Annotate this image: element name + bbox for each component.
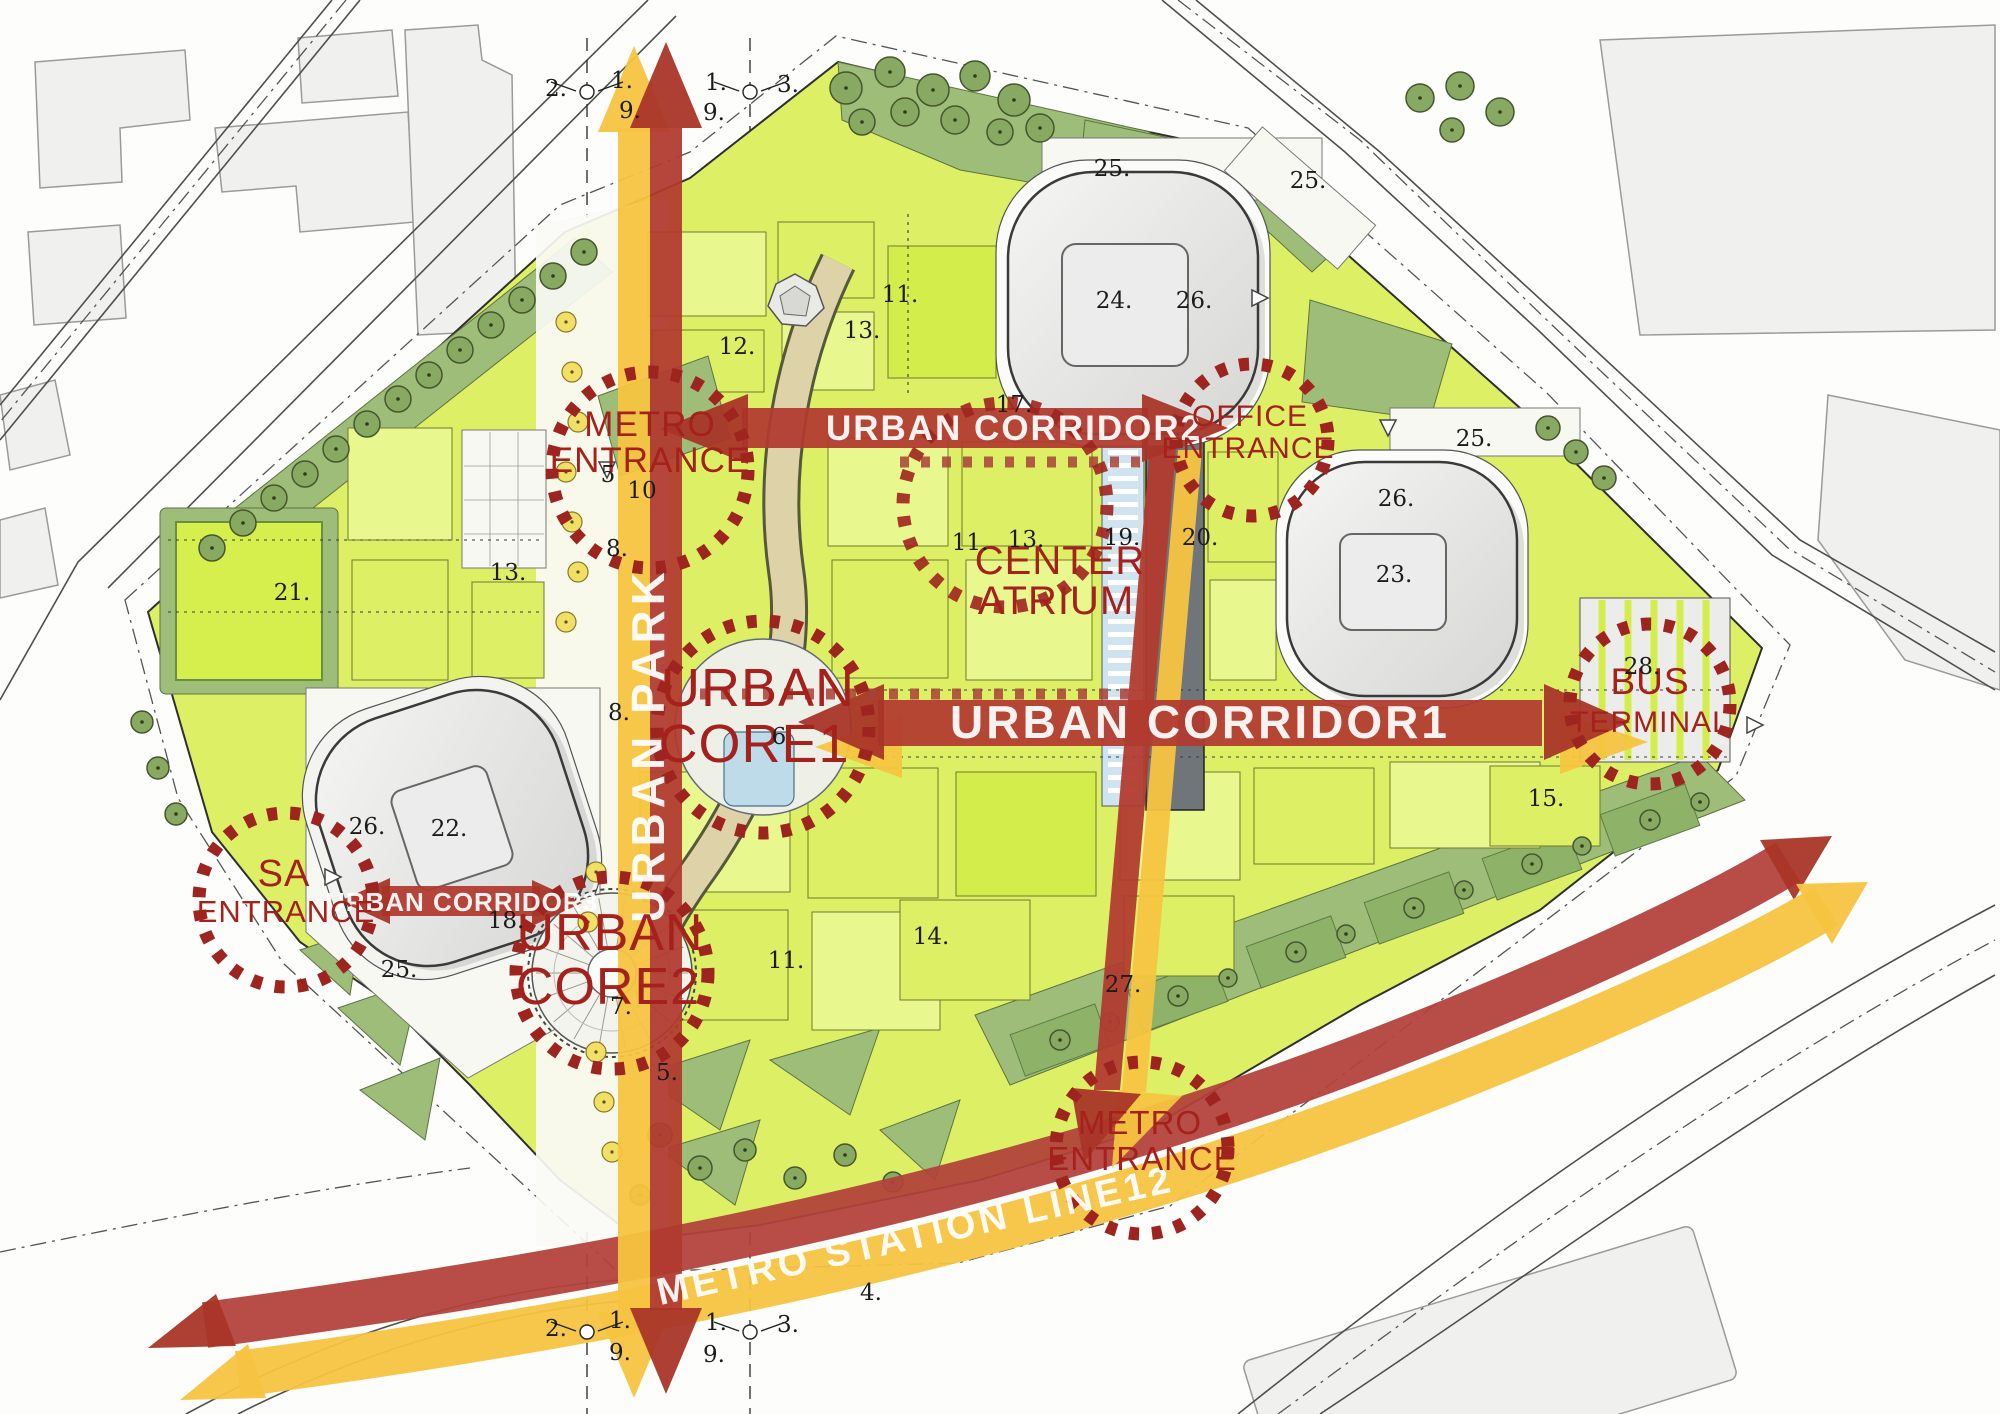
annotation-number: 8. (608, 700, 630, 726)
metro-entrance-bottom-label-1: METRO (1078, 1104, 1202, 1141)
urban-corridor1-label: URBAN CORRIDOR1 (950, 696, 1450, 748)
annotation-number: 26. (1378, 486, 1415, 512)
annotation-number: 15. (1528, 786, 1565, 812)
sa-entrance-label-2: ENTRANCE (197, 894, 376, 929)
annotation-number: 9. (609, 1340, 631, 1366)
annotation-number: 13. (844, 318, 881, 344)
urban-core1-label-2: CORE1 (658, 714, 849, 774)
annotation-number: 3. (777, 72, 799, 98)
annotation-number: 25. (1456, 426, 1493, 452)
sa-entrance-label-1: SA (258, 853, 311, 895)
annotation-number: 1. (705, 1310, 727, 1336)
urban-core2-label-2: CORE2 (516, 958, 700, 1016)
metro-entrance-top-label-2: ENTRANCE (550, 441, 751, 480)
master-plan-stage: URBAN CORRIDOR1 URBAN CORRIDOR2 URBAN CO… (0, 0, 2000, 1414)
annotation-number: 12. (719, 334, 756, 360)
annotation-number: 26. (349, 814, 386, 840)
annotation-number: 4. (860, 1280, 882, 1306)
urban-core1-label-1: URBAN (661, 658, 855, 718)
bus-terminal-label-2: TERMINAL (1570, 706, 1730, 739)
annotation-number: 11. (952, 530, 989, 556)
annotation-number: 24. (1096, 288, 1133, 314)
annotation-number: 25. (1290, 168, 1327, 194)
annotation-number: 10 (627, 478, 656, 504)
annotation-number: 23. (1376, 562, 1413, 588)
annotation-number: 27. (1105, 972, 1142, 998)
annotation-number: 28. (1624, 654, 1661, 680)
annotation-number: 1. (705, 70, 727, 96)
annotation-number: 2. (545, 1316, 567, 1342)
annotation-number: 5. (656, 1060, 678, 1086)
annotation-number: 25. (381, 957, 418, 983)
annotation-number: 11. (882, 282, 919, 308)
office-entrance-label-2: ENTRANCE (1161, 432, 1334, 465)
annotation-number: 5 (601, 462, 616, 488)
metro-entrance-top-label-1: METRO (584, 405, 715, 444)
center-atrium-label-2: ATRIUM (978, 579, 1134, 623)
annotation-number: 7. (610, 994, 632, 1020)
annotation-number: 20. (1182, 525, 1219, 551)
annotation-number: 18. (488, 908, 525, 934)
annotation-number: 13. (490, 560, 527, 586)
annotation-number: 22. (431, 816, 468, 842)
annotation-number: 17. (996, 392, 1033, 418)
annotation-number: 1. (611, 68, 633, 94)
annotation-number: 11. (768, 948, 805, 974)
annotation-number: 6 (772, 724, 787, 750)
annotation-number: 21. (274, 580, 311, 606)
annotation-number: 1. (609, 1308, 631, 1334)
annotation-number: 9. (619, 98, 641, 124)
annotation-number: 2. (545, 76, 567, 102)
site-plan-drawing: URBAN CORRIDOR1 URBAN CORRIDOR2 URBAN CO… (0, 0, 2000, 1414)
annotation-number: 25. (1094, 156, 1131, 182)
annotation-number: 19. (1104, 525, 1141, 551)
annotation-number: 3. (777, 1312, 799, 1338)
urban-core2-label-1: URBAN (516, 904, 703, 962)
metro-entrance-bottom-label-2: ENTRANCE (1047, 1140, 1237, 1177)
annotation-number: 26. (1176, 288, 1213, 314)
annotation-number: 9. (703, 100, 725, 126)
annotation-number: 14. (913, 924, 950, 950)
annotation-number: 13. (1008, 527, 1045, 553)
annotation-number: 8. (606, 536, 628, 562)
annotation-number: 9. (703, 1342, 725, 1368)
office-entrance-label-1: OFFICE (1192, 400, 1308, 433)
